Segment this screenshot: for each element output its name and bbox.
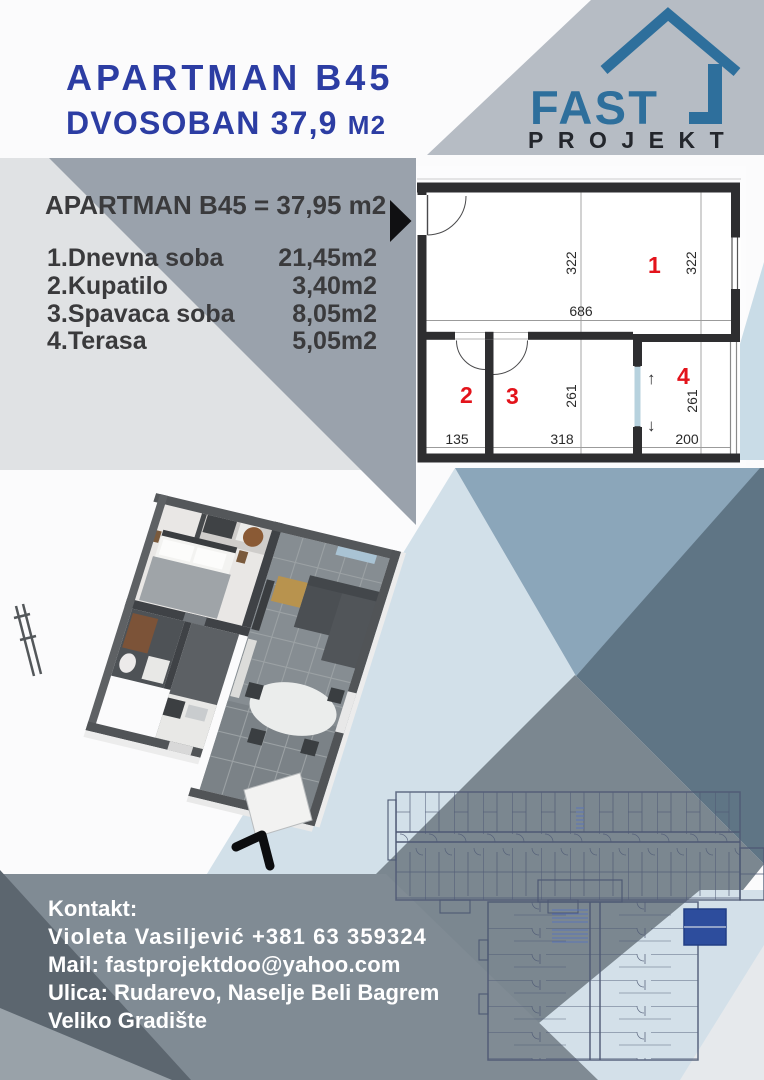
svg-text:3: 3 bbox=[506, 383, 519, 409]
svg-text:322: 322 bbox=[683, 251, 699, 275]
svg-text:1: 1 bbox=[648, 252, 661, 278]
svg-text:135: 135 bbox=[445, 431, 469, 447]
svg-text:261: 261 bbox=[684, 389, 700, 413]
svg-text:Violeta Vasiljević +381 63 359: Violeta Vasiljević +381 63 359324 bbox=[48, 924, 427, 949]
svg-text:4.Terasa: 4.Terasa bbox=[47, 327, 148, 355]
svg-text:Ulica: Rudarevo, Naselje Beli: Ulica: Rudarevo, Naselje Beli Bagrem bbox=[48, 980, 439, 1005]
svg-text:686: 686 bbox=[569, 303, 593, 319]
svg-text:APARTMAN B45: APARTMAN B45 bbox=[66, 57, 393, 98]
svg-text:318: 318 bbox=[550, 431, 574, 447]
svg-text:Kontakt:: Kontakt: bbox=[48, 896, 137, 921]
svg-text:5,05m2: 5,05m2 bbox=[292, 327, 377, 355]
svg-text:261: 261 bbox=[563, 384, 579, 408]
svg-text:8,05m2: 8,05m2 bbox=[292, 300, 377, 328]
svg-text:2: 2 bbox=[460, 382, 473, 408]
svg-text:DVOSOBAN 37,9 M2: DVOSOBAN 37,9 M2 bbox=[66, 105, 386, 141]
svg-text:APARTMAN B45 = 37,95 m2: APARTMAN B45 = 37,95 m2 bbox=[45, 190, 386, 220]
svg-text:2.Kupatilo: 2.Kupatilo bbox=[47, 272, 168, 300]
svg-text:↑: ↑ bbox=[647, 369, 656, 388]
svg-text:Mail: fastprojektdoo@yahoo.com: Mail: fastprojektdoo@yahoo.com bbox=[48, 952, 401, 977]
svg-text:3.Spavaca soba: 3.Spavaca soba bbox=[47, 300, 236, 328]
svg-text:1.Dnevna soba: 1.Dnevna soba bbox=[47, 244, 225, 272]
svg-text:200: 200 bbox=[675, 431, 699, 447]
svg-text:PROJEKT: PROJEKT bbox=[528, 127, 738, 153]
svg-text:21,45m2: 21,45m2 bbox=[278, 244, 377, 272]
svg-text:322: 322 bbox=[563, 251, 579, 275]
svg-text:3,40m2: 3,40m2 bbox=[292, 272, 377, 300]
svg-text:↓: ↓ bbox=[647, 416, 656, 435]
svg-text:4: 4 bbox=[677, 363, 690, 389]
svg-text:Veliko Gradište: Veliko Gradište bbox=[48, 1008, 207, 1033]
